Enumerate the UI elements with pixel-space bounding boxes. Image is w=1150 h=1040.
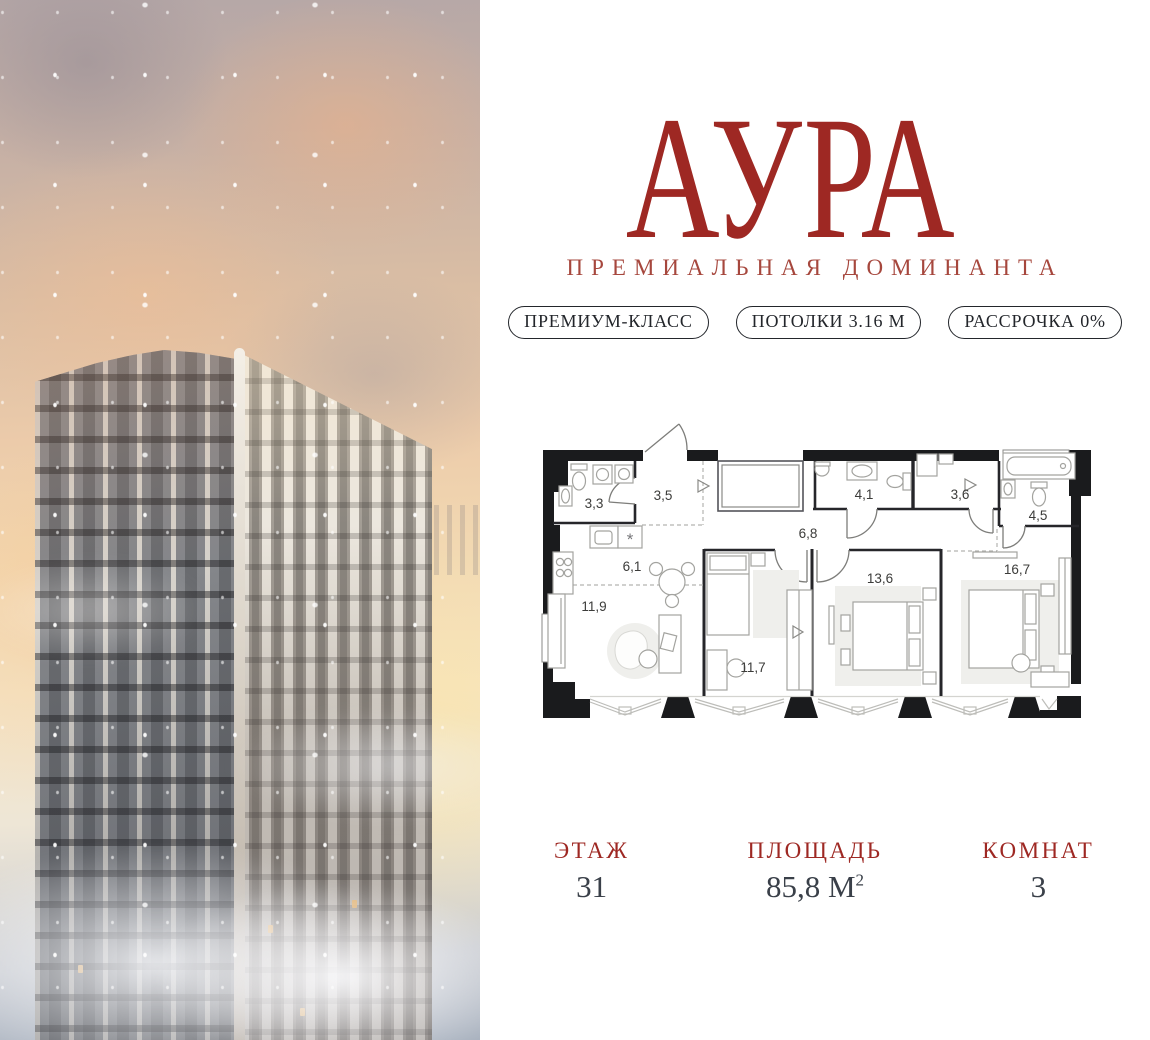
floor-plan: * 3,3 3,5 4,1 3,6 4,5 6,8 6,1 13,6 16,7 … [535, 416, 1095, 722]
lit-window [78, 965, 83, 973]
room-area-label: 6,8 [799, 526, 818, 541]
room-area-label: 4,5 [1029, 508, 1048, 523]
floor-plan-svg: * 3,3 3,5 4,1 3,6 4,5 6,8 6,1 13,6 16,7 … [535, 416, 1095, 722]
room-area-label: 13,6 [867, 571, 893, 586]
building-corner-edge [234, 348, 245, 1040]
info-value: 85,8 М2 [703, 869, 926, 905]
door-swings [609, 424, 1025, 582]
info-label: ЭТАЖ [480, 838, 703, 864]
brand-logo-wrap: АУРА [456, 91, 1126, 267]
info-rooms: КОМНАТ 3 [927, 838, 1150, 905]
building-left-facade [35, 350, 240, 1040]
badge-installment: РАССРОЧКА 0% [948, 306, 1121, 339]
room-area-label: 11,7 [740, 660, 765, 675]
room-area-label: 6,1 [623, 559, 642, 574]
lit-window [352, 900, 357, 908]
badge-ceiling-height: ПОТОЛКИ 3.16 М [736, 306, 922, 339]
info-label: ПЛОЩАДЬ [703, 838, 926, 864]
room-area-label: 11,9 [581, 599, 606, 614]
info-floor: ЭТАЖ 31 [480, 838, 703, 905]
room-area-label: 4,1 [855, 487, 874, 502]
info-value: 3 [927, 869, 1150, 905]
entrance-door [645, 424, 687, 452]
balcony-glazing [590, 697, 1057, 716]
lit-window [268, 925, 273, 933]
info-value: 31 [480, 869, 703, 905]
info-area: ПЛОЩАДЬ 85,8 М2 [703, 838, 926, 905]
content-panel: АУРА ПРЕМИАЛЬНАЯ ДОМИНАНТА ПРЕМИУМ-КЛАСС… [480, 0, 1150, 1040]
room-area-label: 3,3 [585, 496, 604, 511]
brand-logo: АУРА [543, 91, 1039, 267]
info-value-text: 85,8 М [766, 869, 856, 904]
room-area-label: 3,6 [951, 487, 970, 502]
info-value-text: 3 [1031, 869, 1047, 904]
tower-building [0, 340, 480, 1040]
room-area-label: 16,7 [1004, 562, 1030, 577]
info-value-text: 31 [576, 869, 607, 904]
room-area-label: 3,5 [654, 488, 673, 503]
kitchen-appliance-symbol: * [627, 530, 634, 549]
info-label: КОМНАТ [927, 838, 1150, 864]
apartment-info-row: ЭТАЖ 31 ПЛОЩАДЬ 85,8 М2 КОМНАТ 3 [480, 838, 1150, 905]
badges-row: ПРЕМИУМ-КЛАСС ПОТОЛКИ 3.16 М РАССРОЧКА 0… [480, 306, 1150, 339]
brand-tagline: ПРЕМИАЛЬНАЯ ДОМИНАНТА [480, 255, 1150, 281]
info-value-sup: 2 [856, 871, 865, 890]
building-right-facade [240, 353, 432, 1040]
badge-premium-class: ПРЕМИУМ-КЛАСС [508, 306, 708, 339]
lit-window [300, 1008, 305, 1016]
building-photo [0, 0, 480, 1040]
listing-card: АУРА ПРЕМИАЛЬНАЯ ДОМИНАНТА ПРЕМИУМ-КЛАСС… [0, 0, 1150, 1040]
